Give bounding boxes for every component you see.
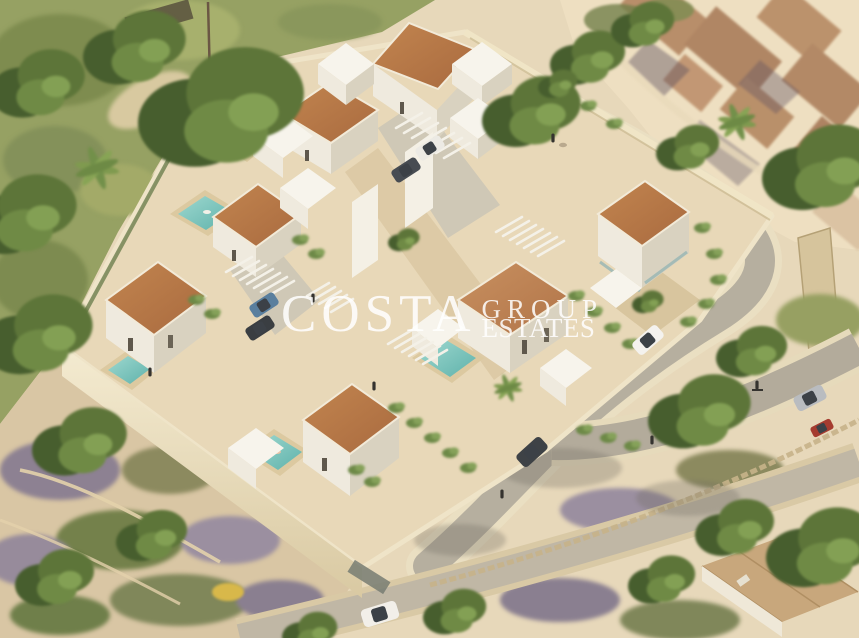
render-canvas: COSTA GROUP ESTATES bbox=[0, 0, 859, 638]
dog bbox=[559, 143, 567, 147]
swimmer bbox=[203, 210, 211, 214]
dog-walker bbox=[551, 134, 554, 143]
scene-art bbox=[0, 0, 859, 638]
yellow-bush bbox=[212, 583, 244, 601]
